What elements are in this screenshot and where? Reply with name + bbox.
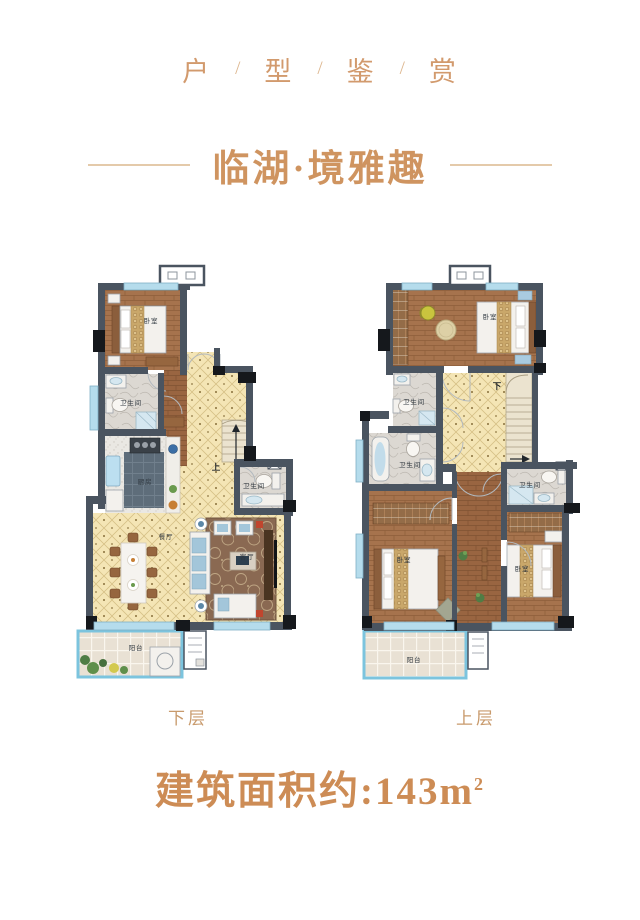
upper-floor-plan: 卧室 卫生间 卫生间 卫生间 卧室 卧室 阳台 下 (356, 266, 580, 678)
area-value: 143m (375, 770, 474, 813)
room-label-upper-bathroom3: 卫生间 (519, 480, 541, 489)
room-label-upper-bathroom2: 卫生间 (399, 460, 421, 469)
upper-stairs (506, 372, 532, 463)
living-set (190, 518, 277, 620)
stair-label-down: 下 (493, 382, 502, 392)
area-label: 建筑面积约: (155, 770, 375, 813)
room-label-kitchen: 厨房 (138, 477, 153, 486)
area-superscript: 2 (474, 774, 485, 794)
stair-label-up: 上 (212, 462, 221, 473)
room-label-dining: 餐厅 (159, 532, 174, 541)
room-label-upper-bathroom1: 卫生间 (403, 397, 425, 406)
room-label-master-bedroom: 卧室 (483, 312, 498, 321)
room-label-bathroom2: 卫生间 (243, 481, 265, 490)
upper-balcony (364, 631, 466, 678)
building-area: 建筑面积约:143m2 (0, 760, 640, 816)
lower-floor-caption: 下层 (158, 704, 218, 729)
lower-floor-plan: 卧室 卫生间 厨房 餐厅 客厅 卫生间 阳台 上 (78, 266, 296, 677)
room-label-balcony: 阳台 (129, 643, 144, 652)
room-label-bedroom: 卧室 (144, 316, 159, 325)
lower-duct (184, 631, 206, 669)
upper-floor-caption: 上层 (446, 704, 506, 729)
room-label-upper-balcony: 阳台 (407, 655, 422, 664)
room-label-left-bedroom: 卧室 (397, 555, 412, 564)
shoe-bench (163, 417, 184, 427)
room-label-bathroom1: 卫生间 (120, 398, 142, 407)
upper-duct (468, 632, 488, 669)
room-label-living: 客厅 (240, 552, 255, 561)
room-label-right-bedroom: 卧室 (515, 564, 530, 573)
floorplan-poster: 户 / 型 / 鉴 / 赏 临湖·境雅趣 (0, 0, 640, 920)
lower-balcony (78, 631, 182, 677)
right-bedroom-furniture (507, 513, 563, 597)
